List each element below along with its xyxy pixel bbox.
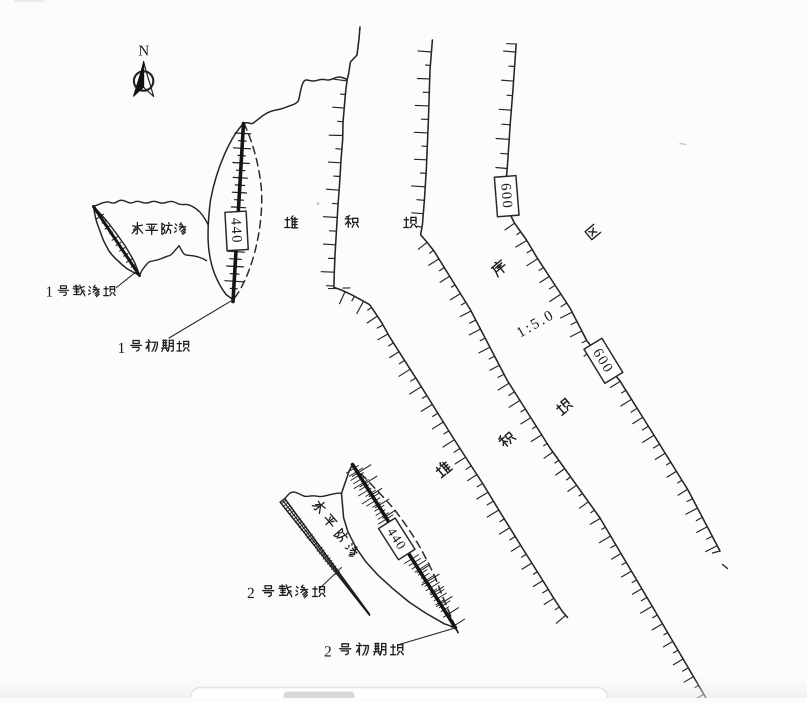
svg-text:N: N <box>138 44 149 60</box>
svg-text:1: 1 <box>118 340 126 357</box>
svg-text:1: 1 <box>46 285 54 301</box>
svg-text:2: 2 <box>324 644 332 661</box>
svg-text:2: 2 <box>247 585 255 602</box>
svg-text:600: 600 <box>497 183 515 210</box>
svg-text:1:5.0: 1:5.0 <box>514 307 558 342</box>
svg-text:440: 440 <box>227 217 244 244</box>
